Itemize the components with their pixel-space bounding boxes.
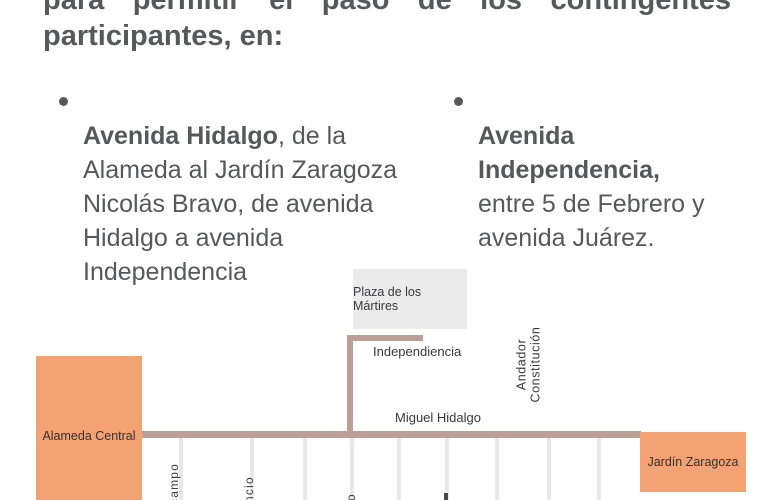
alameda-central-label: Alameda Central (42, 429, 135, 443)
cross-street-line (547, 438, 551, 500)
miguel-hidalgo-street-line (142, 431, 641, 438)
header-word: de (418, 0, 452, 18)
header-word: los (480, 0, 522, 18)
header-word: para (43, 0, 104, 18)
infographic-page: para permitir el paso de los contingente… (0, 0, 780, 500)
header-line1: para permitir el paso de los contingente… (43, 0, 731, 18)
independencia-street-label: Independiencia (373, 344, 461, 359)
street-name-fragment: campo (167, 463, 181, 500)
cross-street-line (597, 438, 601, 500)
header-line2: participantes, en: (43, 18, 731, 54)
plaza-label: Plaza de los Mártires (353, 285, 467, 313)
street-name-bold: Avenida Independencia, (478, 122, 660, 184)
street-name-bold: Avenida Hidalgo (83, 122, 278, 150)
andador-constitucion-label: Andador Constitución (515, 305, 530, 425)
header-word: paso (322, 0, 390, 18)
cross-street-line (495, 438, 499, 500)
header-word: el (269, 0, 293, 18)
cross-street-line (350, 438, 354, 500)
header-word: permitir (133, 0, 241, 18)
street-name-fragment: ncio (242, 476, 256, 500)
cross-street-line (397, 438, 401, 500)
bullet-detail: entre 5 de Febrero y avenida Juárez. (478, 190, 705, 252)
bullet-avenida-hidalgo: Avenida Hidalgo, de la Alameda al Jardín… (83, 85, 403, 289)
independencia-street-stub (347, 335, 423, 341)
bullet-avenida-independencia: Avenida Independencia, entre 5 de Febrer… (478, 85, 748, 255)
bullet-icon (454, 97, 463, 106)
bullet-icon (59, 97, 68, 106)
street-label-tip (444, 493, 448, 500)
independencia-street-line (347, 335, 353, 438)
plaza-de-los-martires-block: Plaza de los Mártires (353, 269, 467, 329)
header-word: contingentes (551, 0, 731, 18)
alameda-central-block: Alameda Central (36, 356, 142, 500)
jardin-zaragoza-block: Jardín Zaragoza (640, 432, 746, 492)
miguel-hidalgo-street-label: Miguel Hidalgo (395, 410, 481, 425)
header-text: para permitir el paso de los contingente… (43, 0, 731, 54)
street-name-fragment: o (344, 493, 358, 500)
cross-street-line (303, 438, 307, 500)
cross-street-line (445, 438, 449, 500)
jardin-zaragoza-label: Jardín Zaragoza (647, 455, 738, 469)
